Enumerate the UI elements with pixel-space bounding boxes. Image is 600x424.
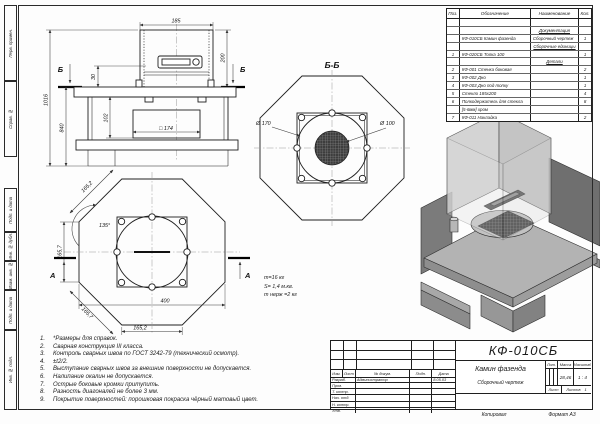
table-cell [447,35,460,42]
format-label: Формат А3 [532,412,592,418]
table-cell: 1 [579,74,591,81]
note-item: 5.Выступание сварных швов за внешние пов… [40,366,336,374]
parts-table: Поз. Обозначение Наименование Кол. Докум… [446,8,592,122]
divider [433,341,434,369]
margin-label: Перв. примен. [8,29,13,58]
table-cell [447,106,460,113]
col-sign: Подп. [410,370,432,377]
table-cell: КФ-011 Накладка [460,114,531,121]
margin-cell-vzam-inv: Взам. инв. № [4,261,17,290]
divider [343,341,344,369]
table-cell: КФ-002 Дно [460,74,531,81]
margin-label: Инв. № дубл. [8,233,13,260]
mass-label: Масса [558,361,574,368]
table-cell [531,51,579,58]
notes-list: 1.*Размеры для справок.2.Сварная констру… [40,336,336,404]
table-cell [460,27,531,34]
table-cell: КФ-003 Дно под топку [460,82,531,89]
product-name: Камин фазенда [456,366,545,373]
table-cell [531,98,579,105]
table-cell: Стекло 185х200 [460,90,531,97]
table-cell: 2 [579,66,591,73]
table-cell: 3 [447,74,460,81]
table-cell: КФ-001 Стенка боковая [460,66,531,73]
title-block-stats: Лит. Масса Масштаб 28,46 1 : 4 Лист Лист… [546,361,591,393]
scale-label: Масштаб [574,361,591,368]
note-item: 4.±t2/2. [40,359,336,367]
table-cell [447,43,460,50]
signature-cell [356,402,411,407]
signature-cell [410,383,432,388]
table-cell [531,114,579,121]
table-cell: 8 [579,98,591,105]
col-date: Дата [432,370,455,377]
table-cell: 5 [447,90,460,97]
note-item: 9.Покрытие поверхностей: порошковая покр… [40,397,336,405]
signature-cell [356,408,411,413]
sheets-cell: Листов 1 [562,386,591,393]
signature-cell [410,377,432,382]
signature-cell: 8.05.03 [432,377,455,382]
table-cell: Сборочный чертеж [531,35,579,42]
mass-note-line: m нерж =2 кг [264,291,297,300]
col-header-name: Наименование [531,9,579,18]
table-row: 2КФ-001 Стенка боковая2 [447,66,591,74]
table-cell [531,19,579,26]
scale-value: 1 : 4 [574,369,591,385]
table-cell [531,82,579,89]
signature-cell: Утв. [331,408,356,413]
lit-label: Лит. [546,361,558,368]
sheets-label: Листов [566,387,580,392]
table-cell: Документация [531,27,579,34]
table-cell: 4 [579,90,591,97]
sheet-label: Лист [546,386,562,393]
signature-cell [432,395,455,400]
table-cell [579,106,591,113]
table-row: Документация [447,27,591,35]
table-cell: 4 [447,82,460,89]
note-item: 3.Контроль сварных швов по ГОСТ 3242-79 … [40,351,336,359]
table-cell: 1 [579,35,591,42]
table-cell [531,66,579,73]
table-cell [531,106,579,113]
col-header-designation: Обозначение [460,9,531,18]
table-cell: 6 [447,98,460,105]
margin-cell-inv-podl: Инв. № подл. [4,330,17,410]
margin-cell-perv-primen: Перв. примен. [4,5,17,81]
margin-cell-podp-data-2: Подп. и дата [4,290,17,330]
table-cell [447,19,460,26]
signature-cell [356,395,411,400]
table-cell [579,58,591,65]
drawing-sheet: 185 200 Б Б [0,0,600,424]
signature-cell: Разраб. [331,377,356,382]
table-cell: 2 [579,114,591,121]
margin-cell-podp-data-1: Подп. и дата [4,188,17,232]
table-cell [531,74,579,81]
signature-cell [432,389,455,394]
mass-note: m=16 кг S= 1,4 м.кв. m нерж =2 кг [264,274,297,300]
sheets-count: 1 [585,387,587,392]
table-row: 6Полкодержатель для стекла8 [447,98,591,106]
table-cell: 1 [447,51,460,58]
signature-cell: Н. контр. [331,402,356,407]
table-row: Детали [447,58,591,66]
margin-label: Инв. № подл. [8,356,13,383]
product-name-cell: Камин фазенда Сборочный чертеж [456,361,546,393]
table-cell [579,27,591,34]
signature-cell [410,395,432,400]
note-item: 8.Разность диагоналей не более 3 мм. [40,389,336,397]
divider [331,359,455,360]
table-row [447,19,591,27]
table-cell: КФ-010СБ Камин фазенда [460,35,531,42]
table-cell: Полкодержатель для стекла [460,98,531,105]
table-cell: Сборочные единицы [531,43,579,50]
signature-cell [356,389,411,394]
margin-cell-sprav-n: Справ. № [4,81,17,157]
table-cell [531,90,579,97]
table-cell: 2 [447,66,460,73]
stats-value-row: 28,46 1 : 4 [546,369,591,386]
col-izm: Изм. [331,370,343,377]
mass-note-line: m=16 кг [264,274,297,283]
col-header-qty: Кол. [579,9,591,18]
table-cell [460,43,531,50]
title-block-signatures: Изм. Лист № докум. Подп. Дата Разраб.Адм… [331,341,456,409]
parts-table-header: Поз. Обозначение Наименование Кол. [447,9,591,19]
table-cell [579,19,591,26]
mass-value: 28,46 [558,369,574,385]
table-cell: [5-6мм] хром [460,106,531,113]
drawing-number: КФ-010СБ [456,341,591,361]
table-row: [5-6мм] хром [447,106,591,114]
table-row: КФ-010СБ Камин фазендаСборочный чертеж1 [447,35,591,43]
note-item: 1.*Размеры для справок. [40,336,336,344]
table-cell: 1 [579,82,591,89]
mass-note-line: S= 1,4 м.кв. [264,283,297,292]
divider [356,341,357,369]
signature-row: Утв. [331,408,455,413]
copied-label: Копировал [452,412,536,418]
signature-cell [356,383,411,388]
col-doc: № докум. [356,370,411,377]
note-item: 6.Налипание окалин не допускается. [40,374,336,382]
table-row: 5Стекло 185х2004 [447,90,591,98]
signature-cell: Администратор [356,377,411,382]
signature-cell: Т. контр. [331,389,356,394]
table-row: Сборочные единицы [447,43,591,51]
signature-cell [410,389,432,394]
table-cell: Детали [531,58,579,65]
title-block-rows: Разраб.Администратор8.05.03Пров.Т. контр… [331,377,455,413]
margin-label: Подп. и дата [8,197,13,224]
table-row: 1КФ-020СБ Топка 1001 [447,51,591,59]
margin-cell-inv-dubl: Инв. № дубл. [4,232,17,261]
title-block: Изм. Лист № докум. Подп. Дата Разраб.Адм… [330,340,593,410]
table-cell: 1 [579,51,591,58]
table-cell [460,58,531,65]
table-cell: 7 [447,114,460,121]
lit-cells [546,369,558,385]
sheet-row: Лист Листов 1 [546,386,591,393]
table-cell: КФ-020СБ Топка 100 [460,51,531,58]
table-cell [447,58,460,65]
table-cell [460,19,531,26]
col-list: Лист [343,370,356,377]
signature-cell [410,402,432,407]
signature-cell [432,402,455,407]
parts-table-body: ДокументацияКФ-010СБ Камин фазендаСбороч… [447,19,591,121]
organization-cell [456,393,591,409]
table-cell [447,27,460,34]
divider [331,350,455,351]
table-row: 3КФ-002 Дно1 [447,74,591,82]
stats-header-row: Лит. Масса Масштаб [546,361,591,369]
table-cell [579,43,591,50]
signature-cell [432,383,455,388]
divider [411,341,412,369]
signature-cell: Пров. [331,383,356,388]
col-header-pos: Поз. [447,9,460,18]
signature-cell: Нач. отд. [331,395,356,400]
document-type: Сборочный чертеж [456,380,545,386]
table-row: 4КФ-003 Дно под топку1 [447,82,591,90]
signature-cell [410,408,432,413]
margin-label: Подп. и дата [8,297,13,324]
table-row: 7КФ-011 Накладка2 [447,114,591,121]
margin-label: Взам. инв. № [8,262,13,289]
margin-label: Справ. № [8,109,13,129]
